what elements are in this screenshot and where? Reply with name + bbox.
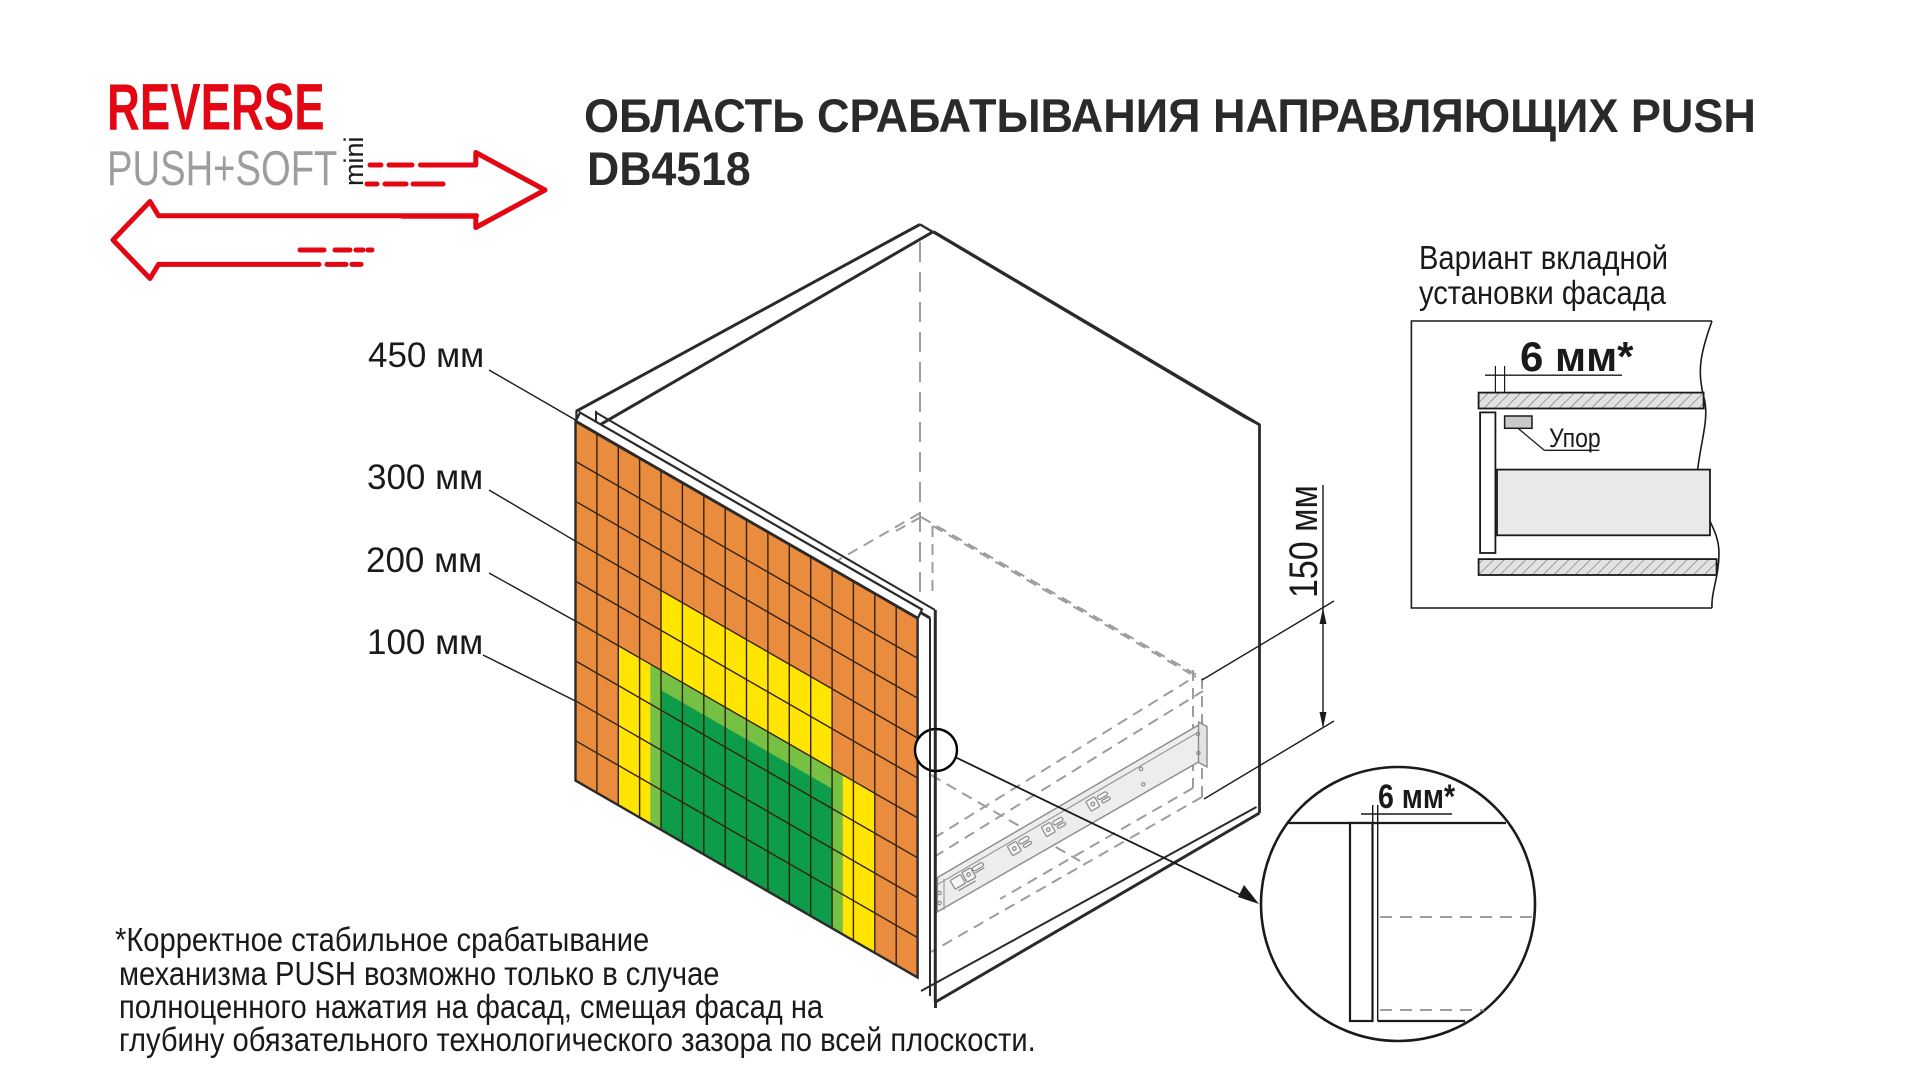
svg-text:6 мм*: 6 мм* xyxy=(1520,333,1634,380)
svg-text:450 мм: 450 мм xyxy=(368,336,484,375)
svg-text:Упор: Упор xyxy=(1549,425,1601,454)
svg-text:механизма PUSH возможно только: механизма PUSH возможно только в случае xyxy=(119,955,719,992)
svg-text:150 мм: 150 мм xyxy=(1280,485,1325,598)
svg-text:DB4518: DB4518 xyxy=(587,142,751,196)
svg-text:REVERSE: REVERSE xyxy=(107,71,325,144)
svg-text:*Корректное стабильное срабаты: *Корректное стабильное срабатывание xyxy=(115,921,649,958)
svg-text:300 мм: 300 мм xyxy=(367,458,483,497)
svg-text:PUSH+SOFT: PUSH+SOFT xyxy=(107,142,337,197)
svg-text:6 мм*: 6 мм* xyxy=(1378,778,1456,816)
svg-text:mini: mini xyxy=(339,136,369,186)
svg-text:100 мм: 100 мм xyxy=(367,623,483,662)
svg-text:глубину обязательного технолог: глубину обязательного технологического з… xyxy=(119,1021,1036,1058)
svg-text:Вариант вкладной: Вариант вкладной xyxy=(1419,239,1668,276)
svg-text:ОБЛАСТЬ СРАБАТЫВАНИЯ НАПРАВЛЯЮ: ОБЛАСТЬ СРАБАТЫВАНИЯ НАПРАВЛЯЮЩИХ PUSH xyxy=(584,89,1756,142)
svg-text:установки фасада: установки фасада xyxy=(1419,274,1667,311)
svg-text:200 мм: 200 мм xyxy=(366,541,482,580)
svg-text:полноценного нажатия на фасад,: полноценного нажатия на фасад, смещая фа… xyxy=(119,988,824,1025)
